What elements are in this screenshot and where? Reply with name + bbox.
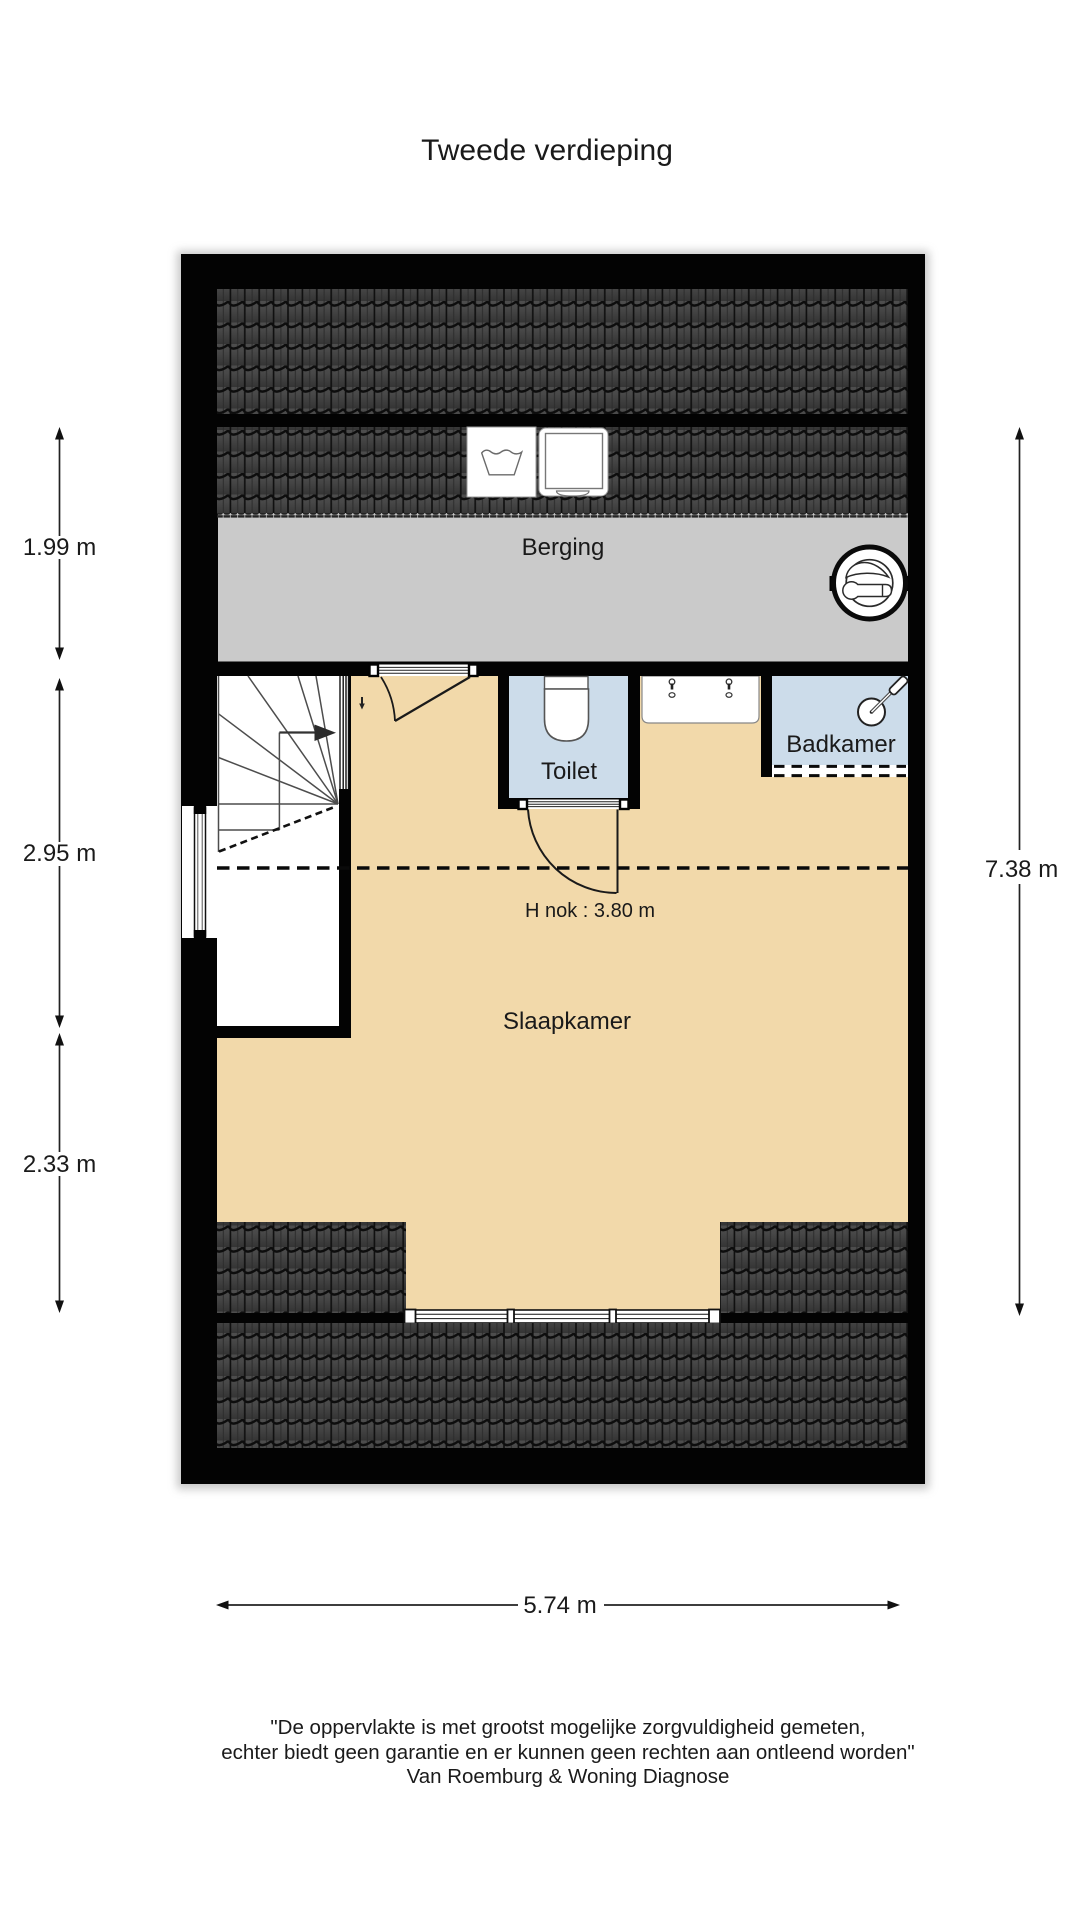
svg-text:Berging: Berging	[522, 534, 605, 561]
svg-text:Van Roemburg & Woning Diagnose: Van Roemburg & Woning Diagnose	[407, 1765, 730, 1788]
svg-text:Slaapkamer: Slaapkamer	[503, 1008, 631, 1035]
svg-text:H nok : 3.80 m: H nok : 3.80 m	[525, 900, 655, 922]
svg-text:2.33 m: 2.33 m	[23, 1151, 96, 1178]
svg-text:5.74 m: 5.74 m	[523, 1592, 596, 1619]
svg-text:2.95 m: 2.95 m	[23, 840, 96, 867]
svg-text:1.99 m: 1.99 m	[23, 534, 96, 561]
svg-text:Badkamer: Badkamer	[786, 731, 895, 758]
svg-text:Toilet: Toilet	[541, 758, 597, 785]
svg-text:7.38 m: 7.38 m	[985, 856, 1058, 883]
svg-text:Tweede verdieping: Tweede verdieping	[421, 134, 673, 167]
svg-text:"De oppervlakte is met grootst: "De oppervlakte is met grootst mogelijke…	[270, 1716, 865, 1739]
svg-text:echter biedt geen garantie en: echter biedt geen garantie en er kunnen …	[221, 1741, 914, 1764]
